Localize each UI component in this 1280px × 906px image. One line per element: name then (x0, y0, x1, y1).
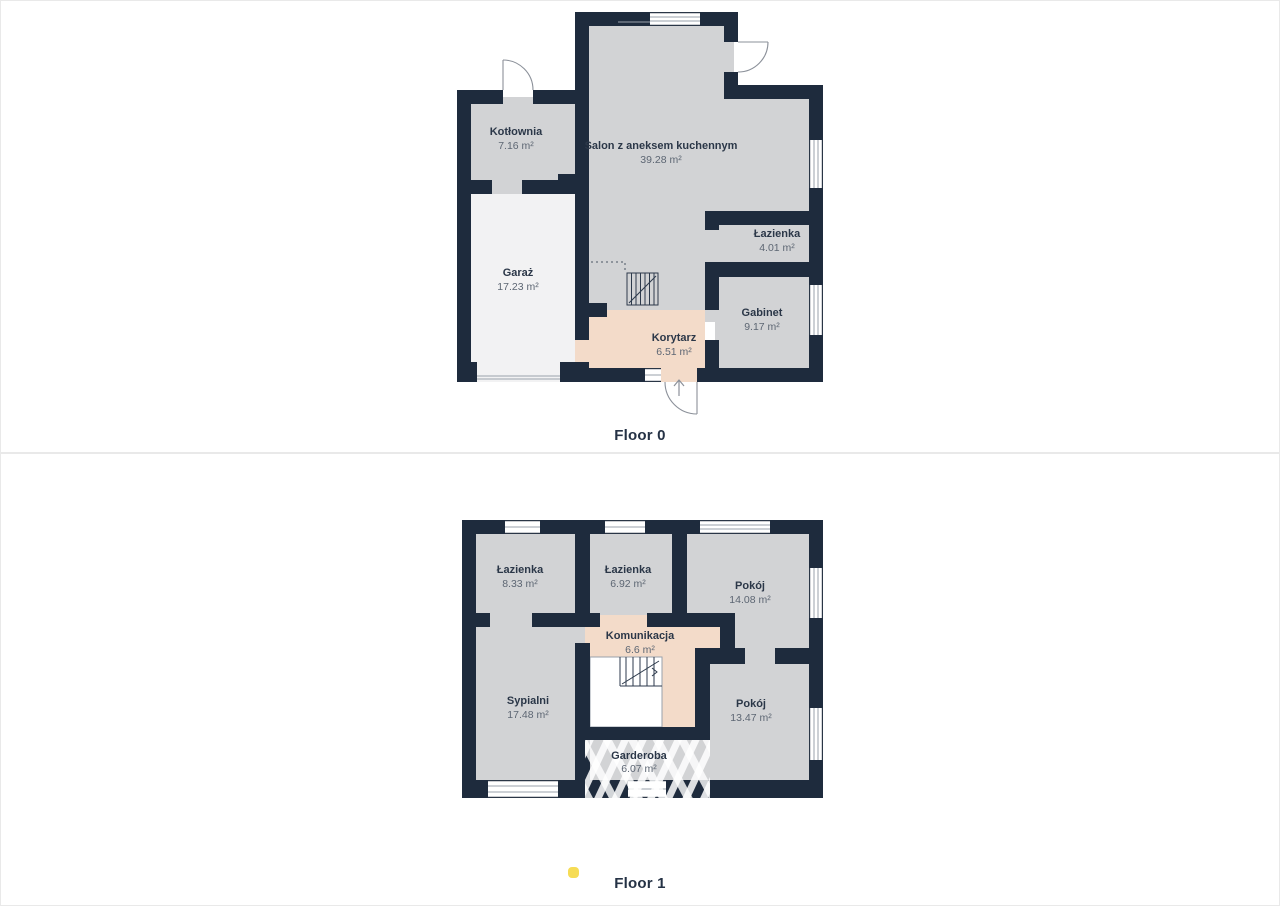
svg-text:39.28 m²: 39.28 m² (640, 154, 682, 166)
window (809, 140, 823, 188)
svg-text:Łazienka: Łazienka (605, 564, 652, 576)
svg-text:Pokój: Pokój (735, 580, 765, 592)
svg-text:17.23 m²: 17.23 m² (497, 281, 539, 293)
svg-text:Garaż: Garaż (503, 267, 534, 279)
svg-text:17.48 m²: 17.48 m² (507, 709, 549, 721)
svg-text:Łazienka: Łazienka (754, 228, 801, 240)
floor-0-plan: Kotłownia 7.16 m² Salon z aneksem kuchen… (455, 10, 825, 422)
door-entrance (665, 382, 697, 414)
svg-text:Sypialni: Sypialni (507, 695, 549, 707)
svg-text:6.07 m²: 6.07 m² (621, 763, 657, 775)
window (650, 12, 700, 26)
svg-text:13.47 m²: 13.47 m² (730, 712, 772, 724)
svg-text:7.16 m²: 7.16 m² (498, 140, 534, 152)
svg-text:6.92 m²: 6.92 m² (610, 578, 646, 590)
svg-text:9.17 m²: 9.17 m² (744, 321, 780, 333)
floor-1-caption: Floor 1 (0, 875, 1280, 892)
svg-text:Kotłownia: Kotłownia (490, 126, 543, 138)
svg-text:Łazienka: Łazienka (497, 564, 544, 576)
entrance-arrow (674, 380, 684, 396)
window (645, 368, 661, 382)
svg-text:Komunikacja: Komunikacja (606, 630, 675, 642)
door-salon-terrace (738, 42, 768, 72)
floor-1-plan: Łazienka 8.33 m² Łazienka 6.92 m² Pokój … (460, 518, 825, 803)
window (809, 708, 823, 760)
svg-text:6.51 m²: 6.51 m² (656, 346, 692, 358)
window (605, 520, 645, 534)
svg-text:4.01 m²: 4.01 m² (759, 242, 795, 254)
svg-text:Salon z aneksem kuchennym: Salon z aneksem kuchennym (585, 140, 738, 152)
door-kotlownia (503, 60, 533, 90)
svg-text:8.33 m²: 8.33 m² (502, 578, 538, 590)
window (809, 285, 823, 335)
svg-text:Pokój: Pokój (736, 698, 766, 710)
svg-text:6.6 m²: 6.6 m² (625, 644, 655, 656)
window (700, 520, 770, 534)
window (488, 780, 558, 798)
floor-0-caption: Floor 0 (0, 427, 1280, 444)
svg-text:Gabinet: Gabinet (742, 307, 783, 319)
window (505, 520, 540, 534)
svg-text:Korytarz: Korytarz (652, 332, 697, 344)
svg-text:Garderoba: Garderoba (611, 750, 668, 762)
window (809, 568, 823, 618)
floorplan-page: Kotłownia 7.16 m² Salon z aneksem kuchen… (0, 0, 1280, 906)
svg-text:14.08 m²: 14.08 m² (729, 594, 771, 606)
